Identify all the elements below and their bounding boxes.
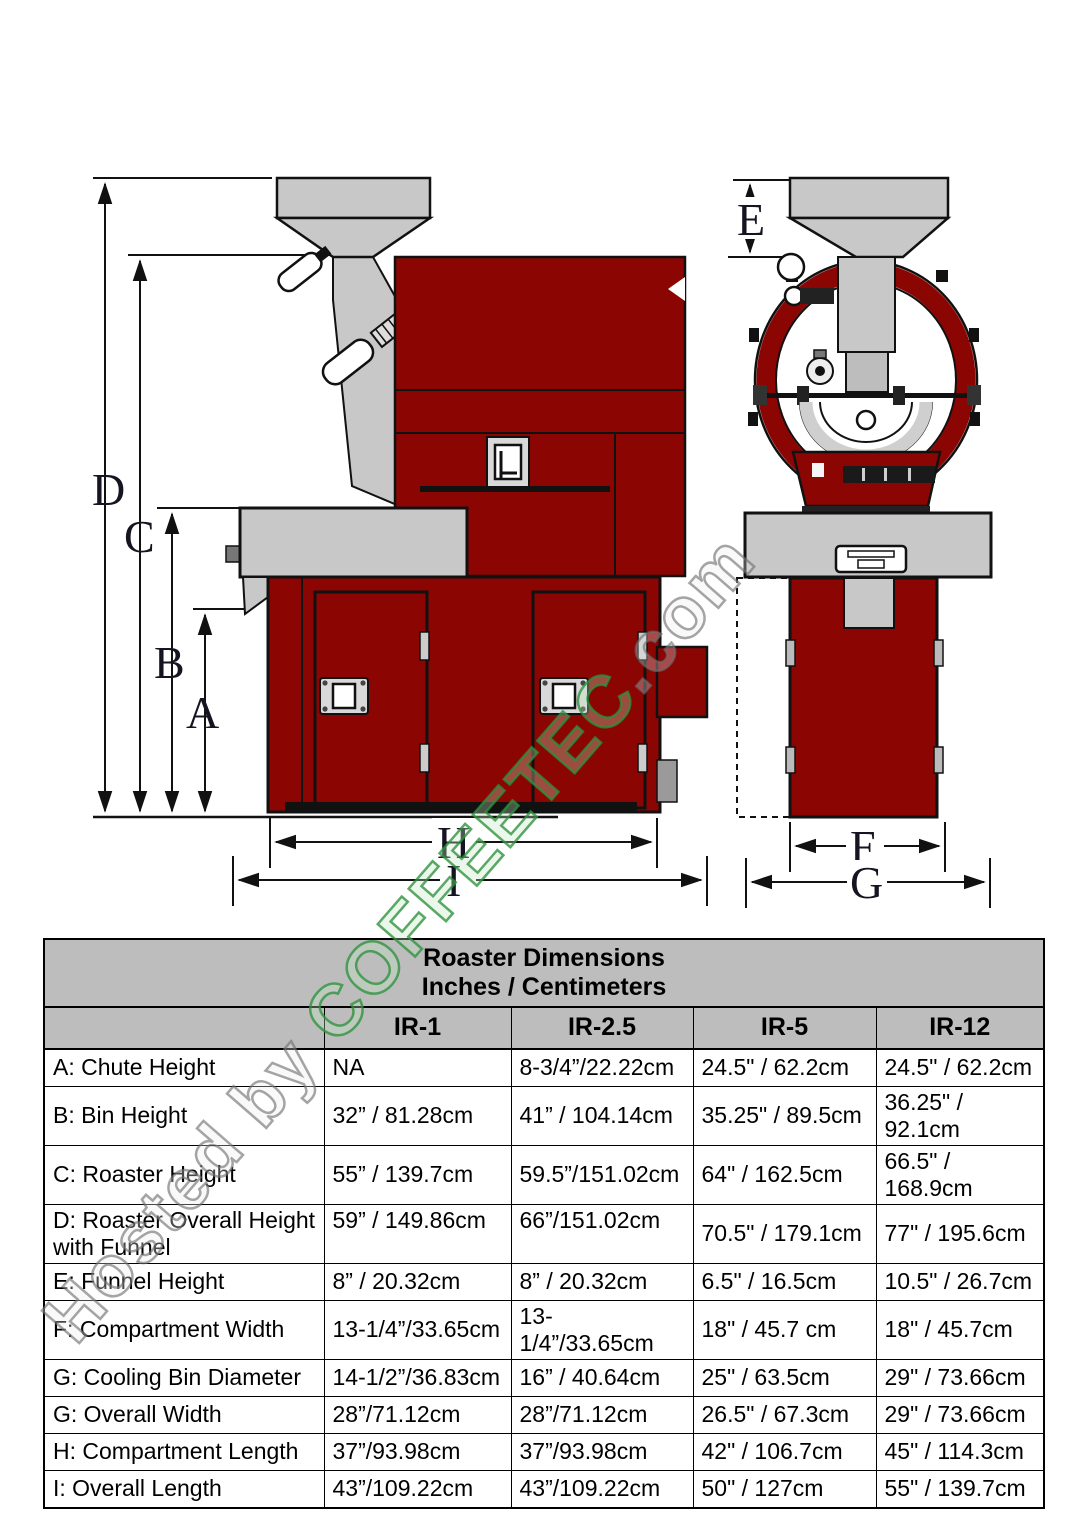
value-cell: 55" / 139.7cm [876,1470,1044,1508]
pedestal [786,578,943,817]
table-row: D: Roaster Overall Height with Funnel 59… [44,1204,1044,1263]
drawer-latch [487,437,529,487]
value-cell: 50" / 127cm [693,1470,876,1508]
value-cell: 66.5" / 168.9cm [876,1145,1044,1204]
row-label: A: Chute Height [44,1049,324,1087]
column-header-ir25: IR-2.5 [511,1007,693,1049]
value-cell: 18" / 45.7cm [876,1300,1044,1359]
front-shelf [745,513,991,577]
row-label: D: Roaster Overall Height with Funnel [44,1204,324,1263]
roaster-diagram: D C B A [0,0,1080,935]
value-cell: 8-3/4”/22.22cm [511,1049,693,1087]
column-header-ir12: IR-12 [876,1007,1044,1049]
table-row: I: Overall Length 43”/109.22cm 43”/109.2… [44,1470,1044,1508]
value-cell: 18" / 45.7 cm [693,1300,876,1359]
table-row: A: Chute Height NA 8-3/4”/22.22cm 24.5" … [44,1049,1044,1087]
value-cell: 24.5" / 62.2cm [693,1049,876,1087]
row-label: E: Funnel Height [44,1263,324,1300]
table-row: G: Overall Width 28”/71.12cm 28”/71.12cm… [44,1396,1044,1433]
value-cell: 43”/109.22cm [324,1470,511,1508]
value-cell: 32” / 81.28cm [324,1086,511,1145]
dim-label-b: B [154,637,185,688]
value-cell: 35.25" / 89.5cm [693,1086,876,1145]
table-title-line1: Roaster Dimensions [45,944,1043,973]
table-row: E: Funnel Height 8” / 20.32cm 8” / 20.32… [44,1263,1044,1300]
value-cell: 66”/151.02cm [511,1204,693,1263]
table-column-header-row: IR-1 IR-2.5 IR-5 IR-12 [44,1007,1044,1049]
dimensions-table: Roaster Dimensions Inches / Centimeters … [43,938,1043,1509]
row-label: B: Bin Height [44,1086,324,1145]
table-row: C: Roaster Height 55” / 139.7cm 59.5”/15… [44,1145,1044,1204]
dim-label-i: I [446,855,461,906]
value-cell: 24.5" / 62.2cm [876,1049,1044,1087]
table-row: H: Compartment Length 37”/93.98cm 37”/93… [44,1433,1044,1470]
value-cell: 77" / 195.6cm [876,1204,1044,1263]
value-cell: 55” / 139.7cm [324,1145,511,1204]
value-cell: 28”/71.12cm [511,1396,693,1433]
drum-shaft [757,393,975,398]
value-cell: 37”/93.98cm [511,1433,693,1470]
value-cell: 6.5" / 16.5cm [693,1263,876,1300]
value-cell: 13-1/4”/33.65cm [324,1300,511,1359]
value-cell: 16” / 40.64cm [511,1359,693,1396]
trier-handle [275,242,335,295]
table-row: B: Bin Height 32” / 81.28cm 41” / 104.14… [44,1086,1044,1145]
corner-cell [44,1007,324,1049]
dim-label-g: G [850,857,883,908]
row-label: I: Overall Length [44,1470,324,1508]
value-cell: 64" / 162.5cm [693,1145,876,1204]
table-title-row: Roaster Dimensions Inches / Centimeters [44,939,1044,1007]
value-cell: 70.5" / 179.1cm [693,1204,876,1263]
value-cell: 42" / 106.7cm [693,1433,876,1470]
side-view: D C B A [92,178,707,906]
row-label: G: Overall Width [44,1396,324,1433]
drum-base [793,452,940,513]
column-header-ir5: IR-5 [693,1007,876,1049]
row-label: F: Compartment Width [44,1300,324,1359]
door-latch-right [540,678,588,714]
value-cell: 26.5" / 67.3cm [693,1396,876,1433]
value-cell: 25" / 63.5cm [693,1359,876,1396]
table-title: Roaster Dimensions Inches / Centimeters [44,939,1044,1007]
row-label: H: Compartment Length [44,1433,324,1470]
dim-label-a: A [186,687,219,738]
value-cell: 10.5" / 26.7cm [876,1263,1044,1300]
table-row: F: Compartment Width 13-1/4”/33.65cm 13-… [44,1300,1044,1359]
value-cell: 8” / 20.32cm [324,1263,511,1300]
dim-label-c: C [124,511,155,562]
table-row: G: Cooling Bin Diameter 14-1/2”/36.83cm … [44,1359,1044,1396]
value-cell: NA [324,1049,511,1087]
value-cell: 59” / 149.86cm [324,1204,511,1263]
nameplate [843,466,935,483]
value-cell: 59.5”/151.02cm [511,1145,693,1204]
door-latch-left [320,678,368,714]
table-title-line2: Inches / Centimeters [45,973,1043,1002]
value-cell: 45" / 114.3cm [876,1433,1044,1470]
row-label: G: Cooling Bin Diameter [44,1359,324,1396]
side-foot [657,760,677,802]
value-cell: 29" / 73.66cm [876,1359,1044,1396]
row-label: C: Roaster Height [44,1145,324,1204]
value-cell: 41” / 104.14cm [511,1086,693,1145]
column-header-ir1: IR-1 [324,1007,511,1049]
value-cell: 14-1/2”/36.83cm [324,1359,511,1396]
value-cell: 29" / 73.66cm [876,1396,1044,1433]
value-cell: 13-1/4”/33.65cm [511,1300,693,1359]
front-view: E [728,178,991,908]
side-duct [657,647,707,717]
value-cell: 43”/109.22cm [511,1470,693,1508]
value-cell: 28”/71.12cm [324,1396,511,1433]
value-cell: 8” / 20.32cm [511,1263,693,1300]
front-hopper [790,178,948,257]
dim-label-d: D [92,464,125,515]
pulley [778,254,804,280]
value-cell: 36.25" / 92.1cm [876,1086,1044,1145]
roaster-spec-sheet: D C B A [0,0,1080,1529]
dim-label-e: E [737,194,765,245]
value-cell: 37”/93.98cm [324,1433,511,1470]
